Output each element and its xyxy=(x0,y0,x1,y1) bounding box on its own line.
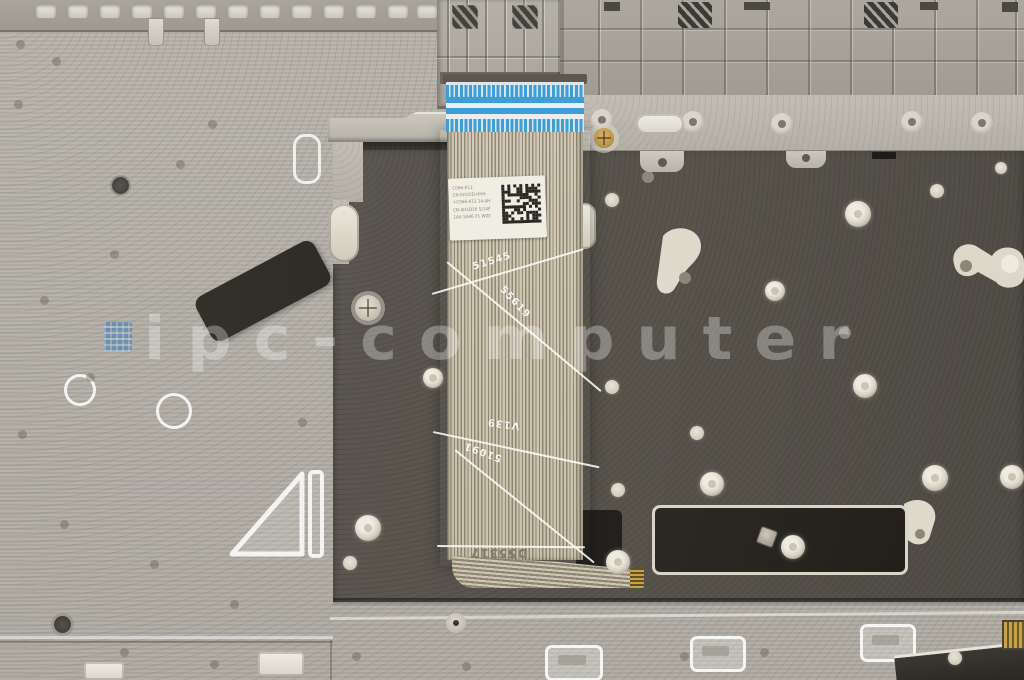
hatched-slot xyxy=(864,2,898,28)
surface-dot xyxy=(208,120,217,129)
surface-dot xyxy=(40,296,49,305)
rivet xyxy=(605,193,619,207)
surface-dot xyxy=(462,662,471,671)
rail-slot xyxy=(292,3,312,18)
rivet xyxy=(343,556,357,570)
rivet-center xyxy=(854,210,862,218)
surface-dot xyxy=(120,648,129,657)
rail-slot xyxy=(260,3,280,18)
cable-end-contacts xyxy=(630,568,644,588)
rivet-center xyxy=(429,374,437,382)
connector-teeth xyxy=(446,85,584,97)
surface-dot xyxy=(176,160,185,169)
cable-marking: D55317 xyxy=(470,546,528,560)
rail-slot xyxy=(164,3,184,18)
rivet-center xyxy=(708,480,716,488)
teardrop-standoff xyxy=(645,222,725,307)
rail-notch xyxy=(744,2,770,10)
snap-inner xyxy=(702,646,729,656)
rivet-center xyxy=(364,524,372,532)
rivet-center xyxy=(931,474,939,482)
rail-slot xyxy=(228,3,248,18)
rail-slot xyxy=(417,3,437,18)
rail-clip xyxy=(204,18,220,46)
surface-dot xyxy=(18,430,27,439)
rivet-center xyxy=(1008,473,1016,481)
screw-hole xyxy=(978,119,986,127)
rivet xyxy=(995,162,1007,174)
surface-dot xyxy=(230,600,239,609)
rail-slot xyxy=(100,3,120,18)
rib-line xyxy=(598,0,600,96)
rail-clip xyxy=(148,18,164,46)
surface-dot xyxy=(60,520,69,529)
snap-inner xyxy=(558,655,586,665)
palmrest-step xyxy=(333,142,363,202)
emboss-triangle xyxy=(224,460,328,564)
surface-dot xyxy=(16,40,25,49)
rivet xyxy=(611,483,625,497)
rivet xyxy=(930,184,944,198)
rivet xyxy=(948,651,962,665)
screw-hole xyxy=(778,120,786,128)
plate-bottom-shadow xyxy=(333,598,1024,606)
surface-dot xyxy=(52,57,61,66)
rib-line xyxy=(724,0,726,96)
rib-line xyxy=(850,0,852,96)
surface-dot xyxy=(86,373,95,382)
matrix-cell xyxy=(538,219,541,222)
rib-line xyxy=(560,28,1024,30)
connector-teeth xyxy=(446,119,584,132)
label-line: 1AA 5A46 P1 W00 xyxy=(453,213,501,222)
rivet-center xyxy=(789,543,797,551)
metal-bracket xyxy=(328,112,454,142)
rib-line xyxy=(808,0,810,96)
surface-dot xyxy=(210,660,219,669)
data-matrix-barcode xyxy=(501,183,541,223)
snap-inner xyxy=(872,635,899,645)
emboss-ring xyxy=(156,393,192,429)
band-pill xyxy=(636,114,684,134)
seam-vertical xyxy=(330,640,332,680)
surface-dot xyxy=(760,648,769,657)
dark-screw xyxy=(112,177,129,194)
adhesive-strip xyxy=(192,237,334,344)
brass-screw xyxy=(594,128,614,148)
surface-dot xyxy=(352,652,361,661)
seam xyxy=(0,641,333,643)
rail-slot xyxy=(68,3,88,18)
tab-hole xyxy=(802,154,810,162)
screw-hole xyxy=(453,620,459,626)
plastic-clip xyxy=(258,652,304,676)
plate-black-slot xyxy=(872,152,896,159)
philips-screw xyxy=(355,295,381,321)
surface-dot xyxy=(298,418,307,427)
rib-line xyxy=(766,0,768,96)
product-photo: 51545 55619 V139 51091 D55317 C066-K13 C… xyxy=(0,0,1024,680)
wing-standoff xyxy=(948,230,1024,294)
rivet xyxy=(690,426,704,440)
rail-slot xyxy=(324,3,344,18)
rib-line xyxy=(934,0,936,96)
ffc-connector xyxy=(446,82,584,132)
trackpad-magnet-plate xyxy=(652,505,908,575)
dark-screw xyxy=(54,616,71,633)
rib-line xyxy=(560,60,1024,62)
surface-dot xyxy=(110,250,119,259)
surface-dot xyxy=(680,652,689,661)
surface-dot xyxy=(14,100,23,109)
rail-notch xyxy=(604,2,620,11)
plastic-clip xyxy=(84,662,124,680)
rib-line xyxy=(976,0,978,96)
rib-line xyxy=(640,0,642,96)
rivet-center xyxy=(861,382,869,390)
rail-slot xyxy=(356,3,376,18)
screw-hole xyxy=(689,118,697,126)
tab-hole xyxy=(658,158,667,167)
rail-slot xyxy=(36,3,56,18)
screw-hole xyxy=(598,116,606,124)
rail-hole xyxy=(452,5,478,29)
rivet xyxy=(642,171,654,183)
emboss-oval-outline xyxy=(293,134,321,184)
screw-hole xyxy=(908,118,916,126)
rivet-center xyxy=(771,287,779,295)
hatched-slot xyxy=(678,2,712,28)
rail-hole xyxy=(512,5,538,29)
rail-notch xyxy=(1002,2,1018,12)
standoff-pill xyxy=(329,204,359,262)
surface-dot xyxy=(150,560,159,569)
rivet xyxy=(605,380,619,394)
seam xyxy=(0,636,333,639)
rivet xyxy=(839,327,851,339)
rail-notch xyxy=(920,2,938,10)
seam xyxy=(330,611,1024,620)
label-text: C066-K13 CN-0H1DD-HHH +C066-K13 14-4H CN… xyxy=(452,184,501,222)
rail-slot xyxy=(132,3,152,18)
rivet-center xyxy=(614,558,622,566)
part-label: C066-K13 CN-0H1DD-HHH +C066-K13 14-4H CN… xyxy=(448,175,547,240)
top-rail-ribbed xyxy=(560,0,1024,99)
watermark-logo-icon xyxy=(104,322,132,352)
rail-slot xyxy=(196,3,216,18)
rail-slot xyxy=(388,3,408,18)
rib-line xyxy=(1015,0,1017,96)
board-connector-pins xyxy=(1002,620,1024,650)
